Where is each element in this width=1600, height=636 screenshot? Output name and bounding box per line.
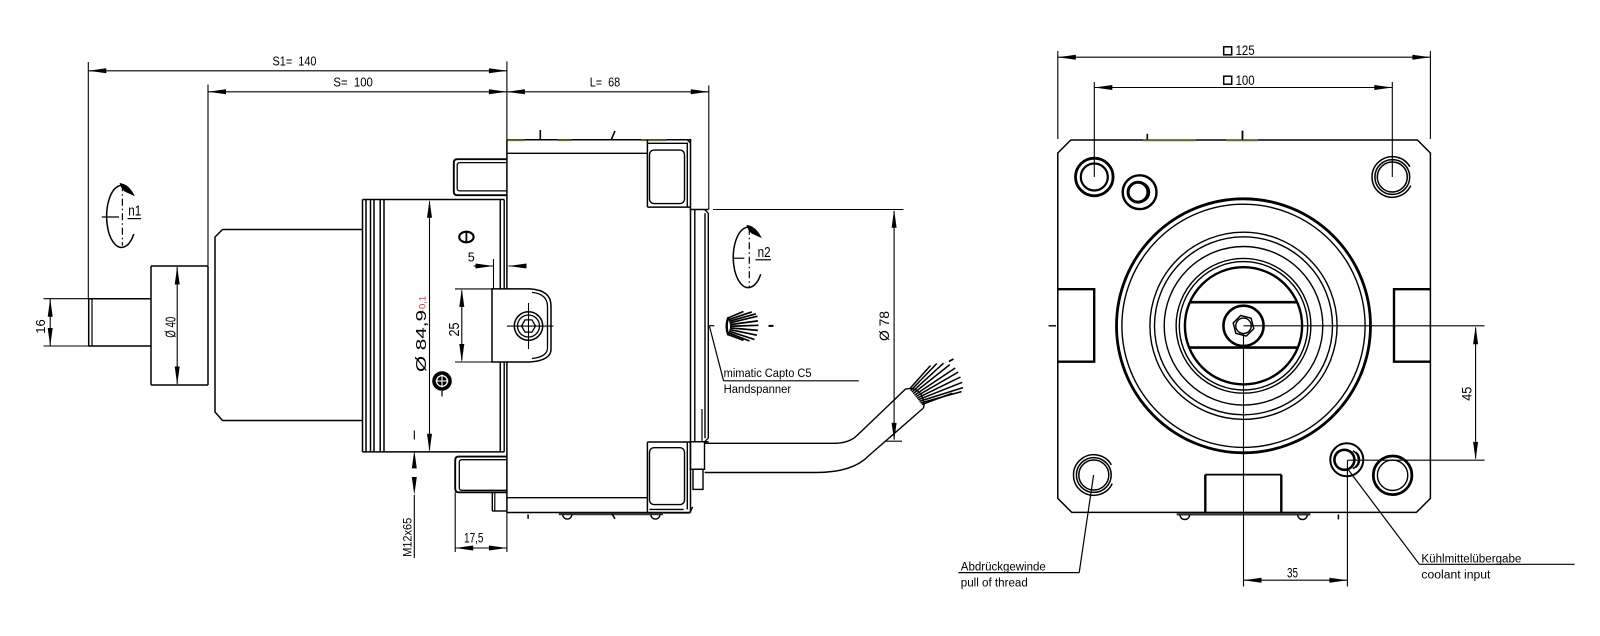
svg-text:45: 45 [1459, 387, 1474, 401]
svg-text:Ø 40: Ø 40 [162, 317, 179, 338]
svg-text:35: 35 [1287, 564, 1298, 580]
svg-text:M12x65: M12x65 [400, 518, 414, 557]
svg-text:16: 16 [34, 319, 48, 334]
svg-text:S= 100: S= 100 [333, 74, 373, 89]
svg-text:L= 68: L= 68 [590, 74, 621, 89]
svg-text:pull of thread: pull of thread [961, 577, 1028, 589]
svg-text:n1: n1 [128, 203, 141, 220]
svg-text:-0,1: -0,1 [418, 296, 429, 313]
svg-text:17,5: 17,5 [464, 530, 484, 546]
svg-text:Kühlmittelübergabe: Kühlmittelübergabe [1421, 553, 1521, 565]
svg-text:5: 5 [468, 250, 475, 264]
svg-text:coolant input: coolant input [1421, 570, 1491, 582]
svg-text:100: 100 [1236, 72, 1255, 88]
svg-text:S1= 140: S1= 140 [273, 53, 317, 68]
svg-text:Handspanner: Handspanner [724, 384, 792, 396]
svg-text:Ø 78: Ø 78 [877, 311, 892, 341]
svg-text:Abdrückgewinde: Abdrückgewinde [961, 561, 1046, 573]
svg-text:125: 125 [1236, 42, 1255, 58]
svg-text:25: 25 [446, 323, 463, 337]
svg-text:mimatic Capto C5: mimatic Capto C5 [724, 368, 812, 380]
svg-text:n2: n2 [758, 244, 771, 261]
svg-text:Ø 84,9: Ø 84,9 [413, 310, 430, 372]
